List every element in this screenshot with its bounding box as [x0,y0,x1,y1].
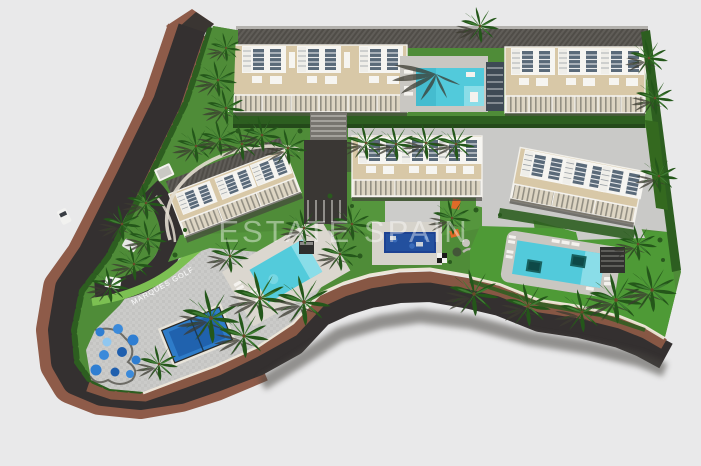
svg-text:ESTATE SPAIN: ESTATE SPAIN [218,214,469,249]
